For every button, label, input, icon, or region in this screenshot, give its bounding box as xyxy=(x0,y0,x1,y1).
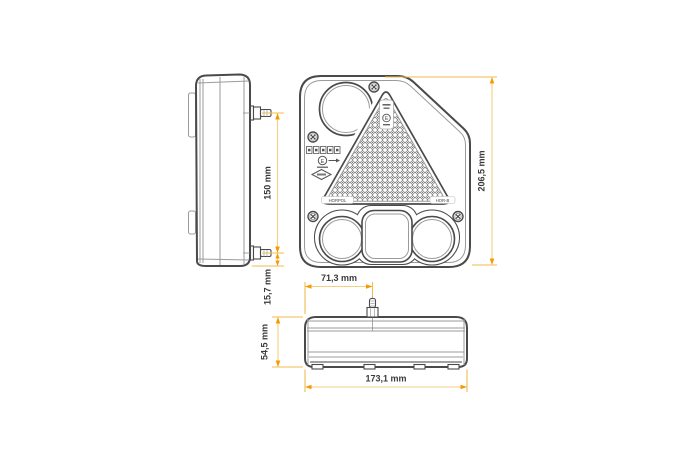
bottom-body-outline xyxy=(305,317,467,367)
phillips-screw-icon xyxy=(308,132,318,142)
brand-strip-right: HOR-B xyxy=(430,197,455,204)
dimension-label-front-height: 206,5 mm xyxy=(477,150,487,191)
brand-strip-left: HORPOL xyxy=(322,197,354,204)
dimension-arrow xyxy=(276,361,281,368)
dimension-label-bolt-spacing: 150 mm xyxy=(263,166,273,200)
e-mark-letter: E xyxy=(321,159,325,165)
side-tab-top xyxy=(189,93,196,137)
dimension-label-depth: 54,5 mm xyxy=(260,324,270,360)
bottom-view xyxy=(305,294,467,369)
technical-drawing: E HORPOL HOR-B xyxy=(0,0,700,467)
brand-text-right: HOR-B xyxy=(436,198,450,203)
bottom-lamp-cluster xyxy=(315,206,459,265)
dimension-depth: 54,5 mm xyxy=(260,317,304,367)
phillips-screw-icon xyxy=(308,212,318,222)
dimension-label-width: 173,1 mm xyxy=(365,374,406,384)
dimension-bolt-spacing: 150 mm xyxy=(262,113,284,253)
dimension-arrow xyxy=(275,261,279,267)
side-body-outline xyxy=(196,75,250,267)
dimension-arrow xyxy=(305,284,312,289)
bottom-center-lamp-window xyxy=(362,211,412,263)
dimension-arrow xyxy=(276,317,281,324)
dimension-arrow xyxy=(305,385,312,390)
dimension-arrow xyxy=(275,247,280,254)
bottom-right-lamp-circle xyxy=(410,217,455,262)
side-tab-bottom xyxy=(189,211,196,234)
phillips-screw-icon xyxy=(369,82,379,92)
dimension-arrow xyxy=(461,385,468,390)
dimension-arrow xyxy=(490,259,495,266)
bottom-left-lamp-circle xyxy=(320,217,365,262)
logo-micro-text xyxy=(317,174,326,176)
dimension-arrow xyxy=(490,77,495,84)
dimension-width: 173,1 mm xyxy=(305,370,467,393)
dimension-arrow xyxy=(275,253,279,259)
dimension-label-bolt-to-bottom: 15,7 mm xyxy=(263,269,273,305)
dimension-stud-offset: 71,3 mm xyxy=(305,273,373,314)
dimension-label-stud-offset: 71,3 mm xyxy=(321,273,357,283)
dimension-arrow xyxy=(366,284,373,289)
dimension-arrow xyxy=(275,113,280,120)
brand-text-left: HORPOL xyxy=(329,198,347,203)
dimension-bolt-to-bottom: 15,7 mm xyxy=(252,253,284,305)
cert-micro-text xyxy=(317,167,328,169)
front-view: E HORPOL HOR-B xyxy=(300,76,470,267)
phillips-screw-icon xyxy=(453,212,463,222)
apex-marking-window: E xyxy=(380,100,394,129)
